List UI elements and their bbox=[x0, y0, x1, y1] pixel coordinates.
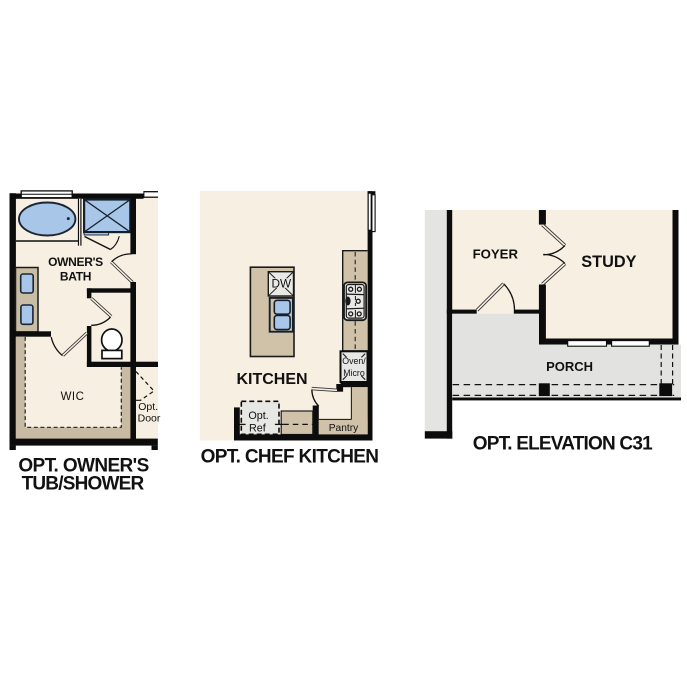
svg-text:OPT. CHEF KITCHEN: OPT. CHEF KITCHEN bbox=[201, 447, 379, 468]
svg-text:Oven/: Oven/ bbox=[342, 356, 366, 366]
svg-text:Pantry: Pantry bbox=[329, 423, 359, 434]
svg-text:WIC: WIC bbox=[61, 391, 85, 403]
svg-text:PORCH: PORCH bbox=[546, 359, 593, 374]
svg-text:KITCHEN: KITCHEN bbox=[236, 371, 307, 388]
svg-text:Opt.: Opt. bbox=[138, 401, 158, 413]
svg-text:TUB/SHOWER: TUB/SHOWER bbox=[22, 473, 145, 494]
svg-text:OPT. ELEVATION C31: OPT. ELEVATION C31 bbox=[473, 434, 653, 455]
svg-text:OWNER'S: OWNER'S bbox=[48, 255, 103, 269]
svg-text:DW: DW bbox=[271, 277, 292, 291]
svg-text:Door: Door bbox=[138, 412, 161, 424]
svg-text:FOYER: FOYER bbox=[473, 246, 519, 261]
svg-text:Micro: Micro bbox=[343, 368, 365, 378]
svg-text:BATH: BATH bbox=[60, 270, 91, 284]
svg-text:Ref: Ref bbox=[249, 423, 267, 435]
svg-text:STUDY: STUDY bbox=[581, 253, 636, 271]
svg-text:Opt.: Opt. bbox=[248, 410, 268, 422]
